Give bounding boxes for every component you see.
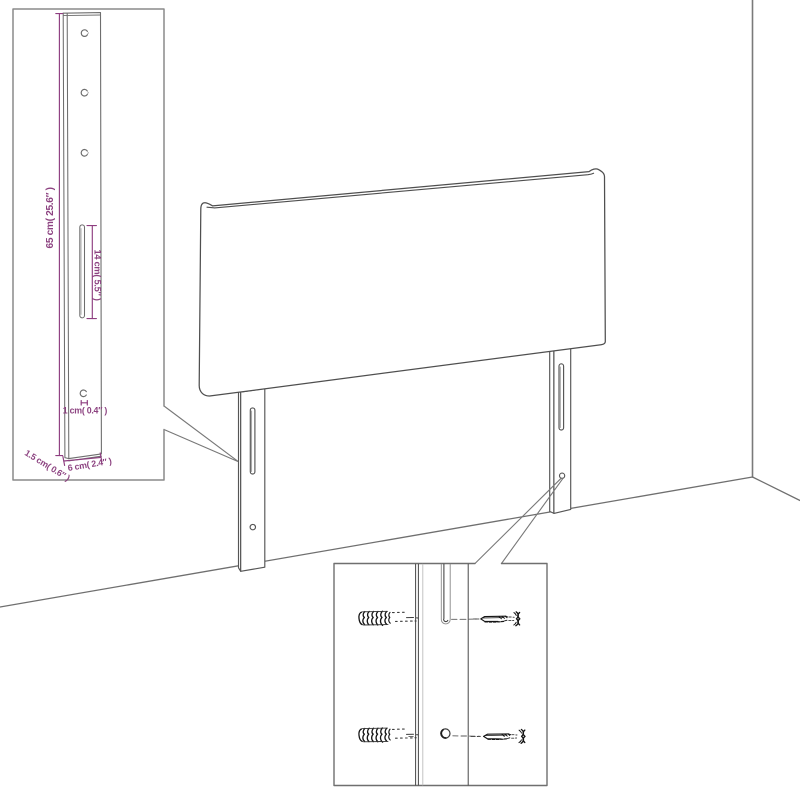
svg-text:1 cm( 0.4″ ): 1 cm( 0.4″ ): [63, 406, 108, 416]
svg-text:65 cm( 25.6″ ): 65 cm( 25.6″ ): [45, 187, 56, 248]
svg-text:14 cm( 5.5″ ): 14 cm( 5.5″ ): [92, 250, 102, 301]
